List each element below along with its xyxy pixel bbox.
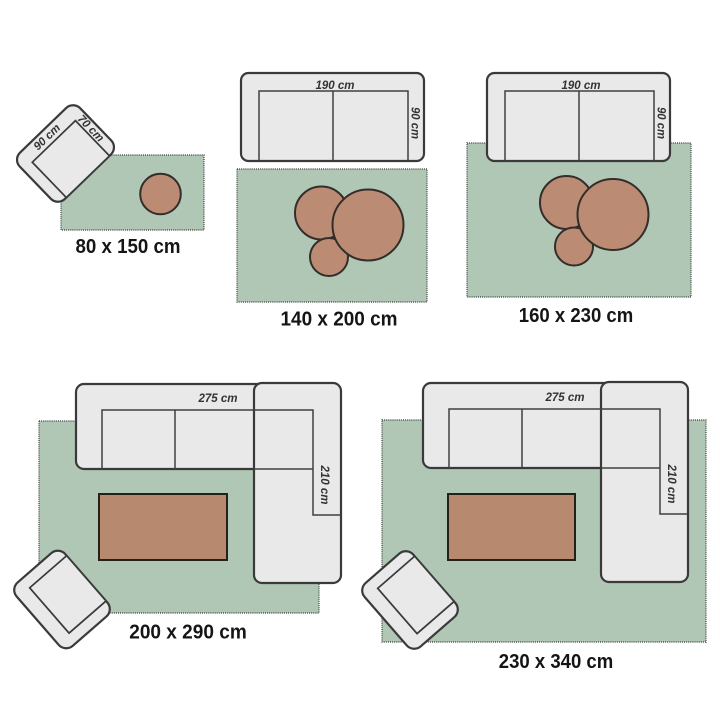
svg-text:210 cm: 210 cm [318, 464, 330, 504]
svg-text:160 x 230 cm: 160 x 230 cm [519, 304, 634, 327]
svg-text:90 cm: 90 cm [655, 107, 667, 139]
svg-text:275 cm: 275 cm [544, 392, 584, 404]
svg-text:200 x 290 cm: 200 x 290 cm [129, 621, 247, 644]
svg-text:140 x 200 cm: 140 x 200 cm [281, 308, 398, 331]
svg-text:90 cm: 90 cm [409, 107, 421, 139]
svg-text:230 x 340 cm: 230 x 340 cm [499, 650, 614, 673]
svg-text:275 cm: 275 cm [197, 393, 237, 405]
svg-text:80 x 150 cm: 80 x 150 cm [76, 235, 181, 258]
svg-text:210 cm: 210 cm [665, 463, 677, 503]
svg-text:190 cm: 190 cm [315, 80, 354, 92]
svg-text:190 cm: 190 cm [561, 80, 600, 92]
